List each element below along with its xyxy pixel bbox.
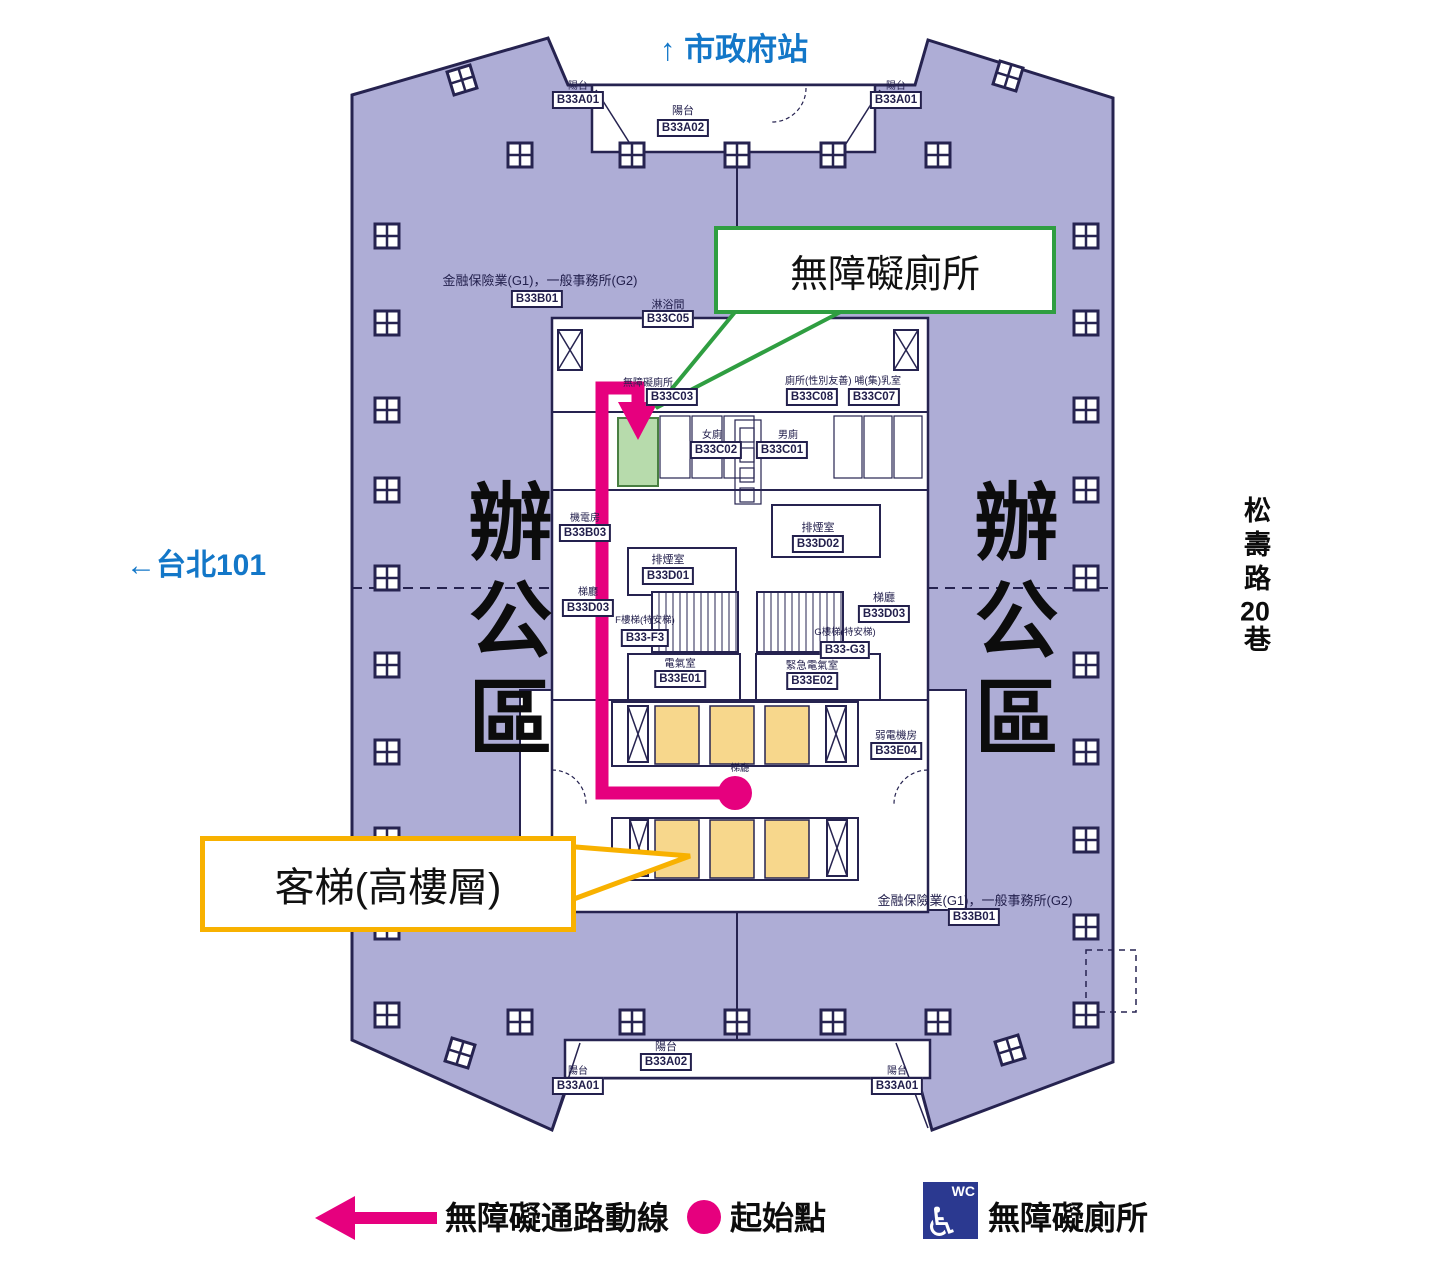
wc-text: WC <box>952 1183 975 1199</box>
callout-passenger-elevator-text: 客梯(高樓層) <box>275 855 502 913</box>
floor-plan-page: ↑ 市政府站 ←台北101 松壽路20巷 辦公區 辦公區 陽台陽台陽台金融保險業… <box>0 0 1444 1272</box>
legend-start-label: 起始點 <box>730 1196 826 1240</box>
callout-accessible-toilet: 無障礙廁所 <box>714 226 1056 314</box>
legend-accessible-wc-icon: WC ♿ <box>923 1182 978 1239</box>
legend-route-arrow-icon <box>315 1196 437 1240</box>
legend-route-label: 無障礙通路動線 <box>445 1196 669 1240</box>
balcony-bottom <box>565 1040 930 1078</box>
legend-start-dot-icon <box>687 1200 721 1234</box>
lobby-east <box>928 690 966 910</box>
route-start-dot <box>718 776 752 810</box>
legend-accessible-toilet-label: 無障礙廁所 <box>988 1196 1148 1240</box>
callout-passenger-elevator: 客梯(高樓層) <box>200 836 576 932</box>
callout-accessible-toilet-text: 無障礙廁所 <box>790 243 980 298</box>
direction-taipei-101: ←台北101 <box>126 540 266 584</box>
street-label-songshou-rd: 松壽路20巷 <box>1236 496 1275 659</box>
direction-city-hall-station: ↑ 市政府站 <box>660 24 808 69</box>
floor-plan-svg <box>0 0 1444 1272</box>
wheelchair-icon: ♿ <box>924 1203 960 1243</box>
office-area-label-west: 辦公區 <box>462 478 546 772</box>
office-area-label-east: 辦公區 <box>968 478 1052 772</box>
